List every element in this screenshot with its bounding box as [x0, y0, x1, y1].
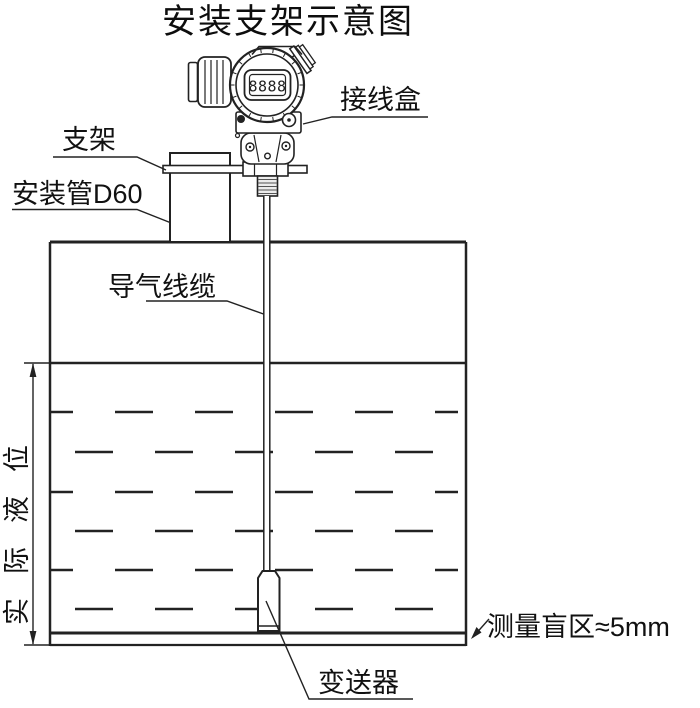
neck-bracket	[241, 133, 294, 164]
arrow-down-icon	[30, 631, 37, 645]
blind-zone-label: 测量盲区≈5mm	[487, 612, 670, 642]
actual-level-label: 实际液位	[2, 421, 32, 625]
screw-icon	[236, 134, 240, 138]
transmitter-label: 变送器	[318, 668, 399, 698]
air-cable-label: 导气线缆	[108, 272, 216, 302]
cable-gland-icon	[189, 57, 232, 107]
bracket-leader	[53, 157, 166, 170]
bracket-label: 支架	[62, 125, 116, 155]
installation-diagram-page: 8888 安装支架示意图 支架 安装管D60 接线盒 导气线缆 实际液位 测量盲…	[0, 0, 700, 708]
diagram-svg: 8888 安装支架示意图 支架 安装管D60 接线盒 导气线缆 实际液位 测量盲…	[0, 0, 700, 708]
air-cable-leader	[146, 301, 264, 314]
threaded-stub	[258, 176, 278, 196]
liquid-dashes	[50, 412, 458, 609]
probe-transmitter	[258, 571, 280, 631]
bolt-icon	[237, 115, 245, 123]
page-title: 安装支架示意图	[162, 3, 414, 41]
liquid	[50, 363, 466, 609]
display-screen: 8888	[245, 70, 291, 100]
display-digits: 8888	[248, 78, 286, 96]
arrow-up-icon	[30, 363, 37, 377]
mounting-pipe-label: 安装管D60	[12, 179, 143, 209]
cable	[264, 196, 270, 572]
mounting-pipe-leader	[12, 210, 170, 223]
transmitter-head: 8888	[189, 41, 318, 164]
junction-box-leader	[303, 117, 428, 124]
junction-box-label: 接线盒	[340, 85, 421, 115]
